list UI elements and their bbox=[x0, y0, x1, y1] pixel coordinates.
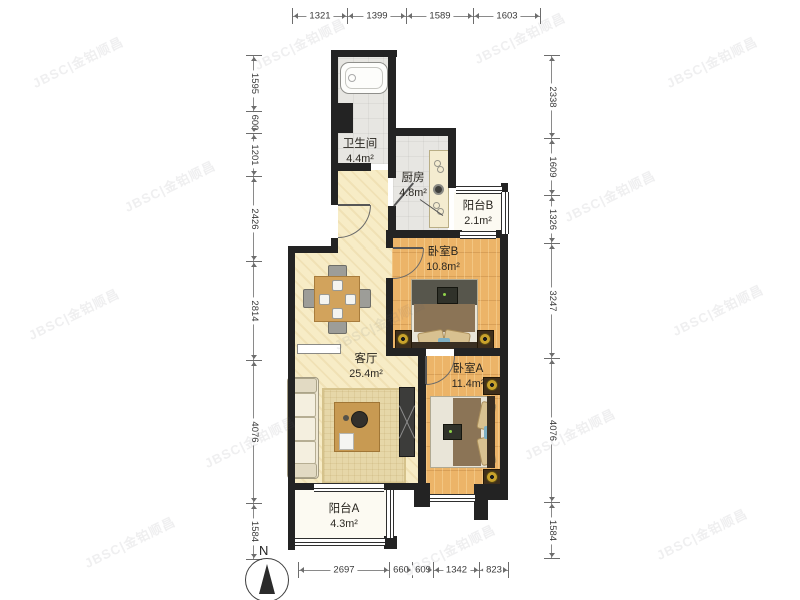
dim-label: 1603 bbox=[493, 11, 520, 21]
coffee-table bbox=[334, 402, 380, 452]
dim-segment: 1201 bbox=[246, 133, 262, 176]
room-label-kitchen: 厨房 4.8m² bbox=[383, 171, 443, 200]
wall-column bbox=[331, 103, 353, 133]
watermark: JBSC|金铂顺昌 bbox=[25, 283, 123, 344]
dim-label: 1326 bbox=[547, 206, 557, 233]
laptop-icon bbox=[443, 424, 462, 440]
room-name: 客厅 bbox=[328, 352, 404, 367]
dim-segment: 823 bbox=[479, 562, 509, 578]
room-label-bedroom-b: 卧室B 10.8m² bbox=[405, 245, 481, 274]
room-label-bedroom-a: 卧室A 11.4m² bbox=[432, 362, 504, 391]
lamp-icon bbox=[397, 333, 409, 345]
dim-segment: 2697 bbox=[298, 562, 389, 578]
room-label-balcony-a: 阳台A 4.3m² bbox=[308, 502, 380, 531]
dim-label: 1342 bbox=[443, 565, 470, 575]
room-name: 阳台A bbox=[308, 502, 380, 517]
room-name: 卧室B bbox=[405, 245, 481, 260]
lamp-icon bbox=[486, 471, 498, 483]
bed-a bbox=[430, 396, 495, 468]
plate-icon bbox=[332, 280, 343, 291]
wall bbox=[288, 246, 338, 253]
room-area: 2.1m² bbox=[450, 214, 506, 228]
watermark: JBSC|金铂顺昌 bbox=[561, 165, 659, 226]
plate-icon bbox=[345, 294, 356, 305]
bed-a-headboard bbox=[487, 396, 495, 468]
bowl-icon bbox=[351, 411, 368, 428]
laptop-icon bbox=[437, 287, 458, 304]
dim-segment: 1399 bbox=[347, 8, 406, 24]
room-label-bathroom: 卫生间 4.4m² bbox=[330, 137, 390, 166]
window-bedroom-b-balcony bbox=[460, 231, 496, 239]
dim-label: 1595 bbox=[249, 70, 259, 97]
plate-icon bbox=[332, 308, 343, 319]
dim-label: 1589 bbox=[426, 11, 453, 21]
room-name: 阳台B bbox=[450, 199, 506, 214]
wall bbox=[474, 484, 488, 520]
decor-icon bbox=[343, 415, 349, 421]
dim-segment: 1584 bbox=[544, 502, 560, 559]
room-name: 卧室A bbox=[432, 362, 504, 377]
dim-label: 2338 bbox=[547, 83, 557, 110]
laptop-light-icon bbox=[443, 293, 446, 296]
wall bbox=[454, 348, 508, 356]
dim-label: 1609 bbox=[547, 153, 557, 180]
window-bedroom-a bbox=[430, 494, 475, 502]
dim-label: 1399 bbox=[363, 11, 390, 21]
room-name: 卫生间 bbox=[330, 137, 390, 152]
dim-label: 1584 bbox=[547, 517, 557, 544]
room-area: 4.3m² bbox=[308, 517, 380, 531]
wall bbox=[414, 483, 430, 507]
bathtub-drain-icon bbox=[348, 74, 356, 82]
wall bbox=[388, 128, 456, 136]
window-balcony-a-bottom bbox=[295, 538, 385, 546]
lamp-icon bbox=[479, 333, 491, 345]
dimension-chain-right: 2338 1609 1326 3247 4076 1584 bbox=[544, 55, 560, 552]
room-area: 25.4m² bbox=[328, 367, 404, 381]
room-label-living: 客厅 25.4m² bbox=[328, 352, 404, 381]
dim-segment: 3247 bbox=[544, 243, 560, 358]
window-balcony-a-right bbox=[386, 490, 394, 538]
dim-label: 2697 bbox=[330, 565, 357, 575]
tv-cabinet bbox=[399, 387, 415, 457]
watermark: JBSC|金铂顺昌 bbox=[29, 31, 127, 92]
notepad-icon bbox=[339, 433, 354, 450]
room-name: 厨房 bbox=[383, 171, 443, 186]
plate-icon bbox=[319, 294, 330, 305]
dim-label: 600 bbox=[249, 112, 259, 134]
dim-label: 2814 bbox=[249, 297, 259, 324]
watermark: JBSC|金铂顺昌 bbox=[669, 279, 767, 340]
dim-segment: 2338 bbox=[544, 55, 560, 138]
room-area: 4.8m² bbox=[383, 186, 443, 200]
wall bbox=[386, 230, 462, 238]
wall bbox=[288, 246, 295, 550]
dim-segment: 2426 bbox=[246, 176, 262, 261]
dim-segment: 1326 bbox=[544, 195, 560, 243]
wall bbox=[384, 483, 418, 490]
watermark: JBSC|金铂顺昌 bbox=[121, 155, 219, 216]
bathtub bbox=[340, 62, 388, 94]
north-needle-icon bbox=[259, 564, 275, 594]
dim-label: 823 bbox=[483, 565, 505, 575]
watermark: JBSC|金铂顺昌 bbox=[81, 511, 179, 572]
dim-label: 2426 bbox=[249, 205, 259, 232]
window-balcony-b-top bbox=[456, 186, 502, 194]
compass-icon bbox=[245, 558, 289, 600]
room-area: 4.4m² bbox=[330, 152, 390, 166]
wall bbox=[386, 238, 393, 248]
room-area: 10.8m² bbox=[405, 260, 481, 274]
watermark: JBSC|金铂顺昌 bbox=[521, 403, 619, 464]
dim-label: 3247 bbox=[547, 287, 557, 314]
dining-table bbox=[314, 276, 360, 322]
wall bbox=[448, 128, 456, 188]
dimension-chain-bottom: 2697 660 609 1342 823 bbox=[298, 562, 503, 578]
room-area: 11.4m² bbox=[432, 377, 504, 391]
wall bbox=[288, 483, 314, 490]
bed-b bbox=[411, 279, 478, 349]
window-living-balcony-a bbox=[314, 483, 384, 492]
dim-segment: 2814 bbox=[246, 261, 262, 360]
room-label-balcony-b: 阳台B 2.1m² bbox=[450, 199, 506, 228]
floor-plan-canvas: 卫生间 4.4m² 厨房 4.8m² 阳台B 2.1m² 卧室B 10.8m² … bbox=[0, 0, 800, 600]
laptop-light-icon bbox=[449, 430, 452, 433]
dim-label: 1201 bbox=[249, 141, 259, 168]
dim-segment: 1589 bbox=[406, 8, 473, 24]
watermark: JBSC|金铂顺昌 bbox=[663, 31, 761, 92]
compass-north-label: N bbox=[259, 543, 268, 558]
dim-segment: 1609 bbox=[544, 138, 560, 195]
dimension-chain-left: 1595 600 1201 2426 2814 4076 1584 bbox=[246, 55, 262, 552]
watermark: JBSC|金铂顺昌 bbox=[653, 503, 751, 564]
dim-segment: 600 bbox=[246, 111, 262, 133]
dim-label: 1584 bbox=[249, 518, 259, 545]
